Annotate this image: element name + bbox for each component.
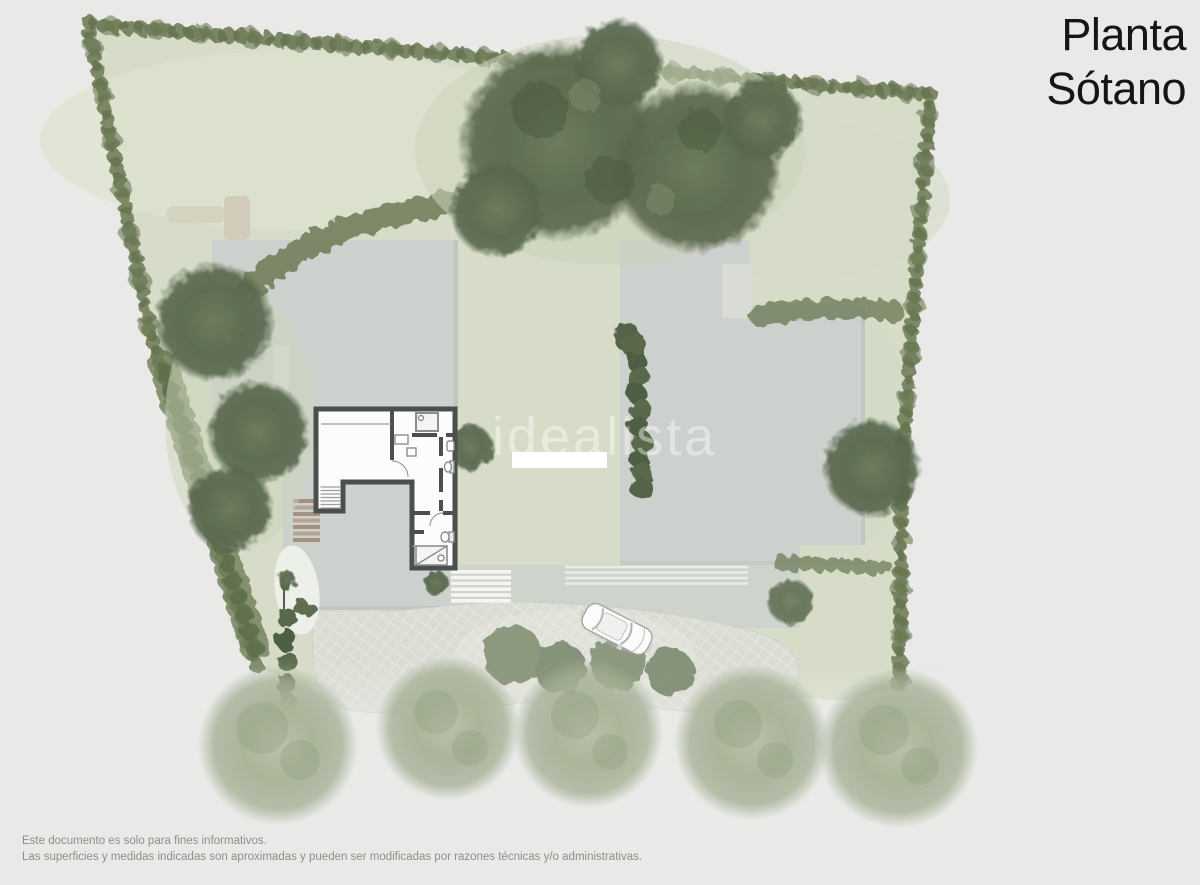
dark-tree: [822, 418, 922, 518]
tree-texture: [512, 82, 568, 138]
garden-path: [166, 206, 226, 223]
tree-texture: [569, 79, 601, 111]
small-shrub: [277, 570, 297, 590]
toilet-tank: [449, 532, 454, 542]
disclaimer-line2: Las superficies y medidas indicadas son …: [22, 850, 642, 866]
driveway-paving: [316, 612, 430, 652]
dark-tree: [720, 78, 804, 162]
dark-tree: [186, 464, 274, 552]
dark-tree: [449, 162, 545, 258]
dark-tree: [154, 262, 274, 382]
garden-path: [224, 196, 250, 240]
plan-title: Planta Sótano: [1046, 8, 1186, 116]
basement-staircase: [321, 487, 342, 508]
right-shrub-band: [760, 309, 900, 315]
chair: [407, 448, 416, 456]
desk: [395, 435, 408, 444]
shower-drain: [419, 416, 424, 421]
roof-notch: [722, 264, 752, 318]
site-plan-page: Planta Sótano idealista Este documento e…: [0, 0, 1200, 885]
small-shrub: [304, 604, 318, 618]
basin: [438, 555, 444, 561]
plan-title-line2: Sótano: [1046, 62, 1186, 116]
tree-texture: [678, 108, 722, 152]
tree-texture: [645, 185, 675, 215]
watermark: idealista: [492, 406, 717, 468]
sink: [447, 441, 454, 451]
tree-texture: [586, 156, 634, 204]
plan-title-line1: Planta: [1046, 8, 1186, 62]
disclaimer: Este documento es solo para fines inform…: [22, 834, 642, 865]
pale-tree-row: [198, 656, 978, 828]
lower-right-hedge: [780, 562, 888, 568]
toilet: [445, 462, 452, 472]
small-shrub: [423, 570, 449, 596]
round-shrub: [767, 578, 815, 626]
disclaimer-line1: Este documento es solo para fines inform…: [22, 834, 642, 850]
toilet: [441, 532, 449, 542]
